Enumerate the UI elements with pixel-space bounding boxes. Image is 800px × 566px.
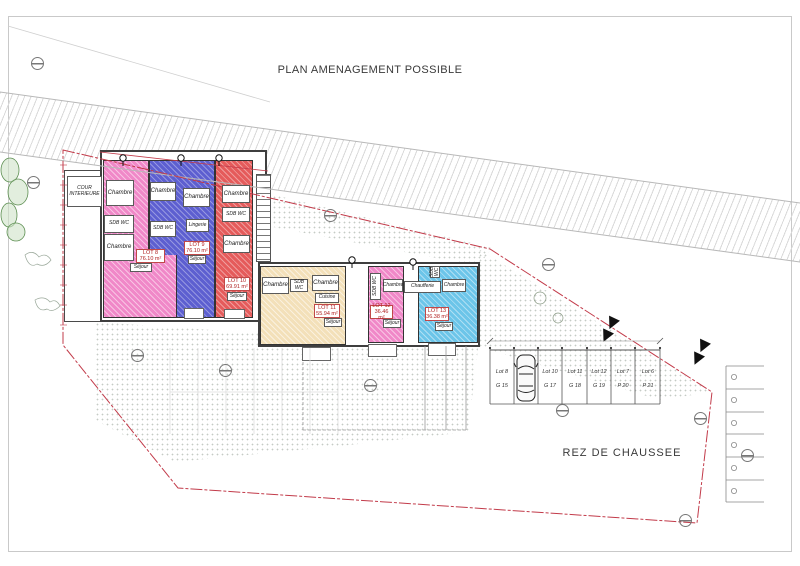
site-plan-sheet: PLAN AMENAGEMENT POSSIBLE REZ DE CHAUSSE…	[0, 0, 800, 566]
floor-title: REZ DE CHAUSSEE	[552, 447, 692, 459]
plan-title: PLAN AMENAGEMENT POSSIBLE	[270, 64, 470, 76]
car-icon	[0, 0, 800, 566]
